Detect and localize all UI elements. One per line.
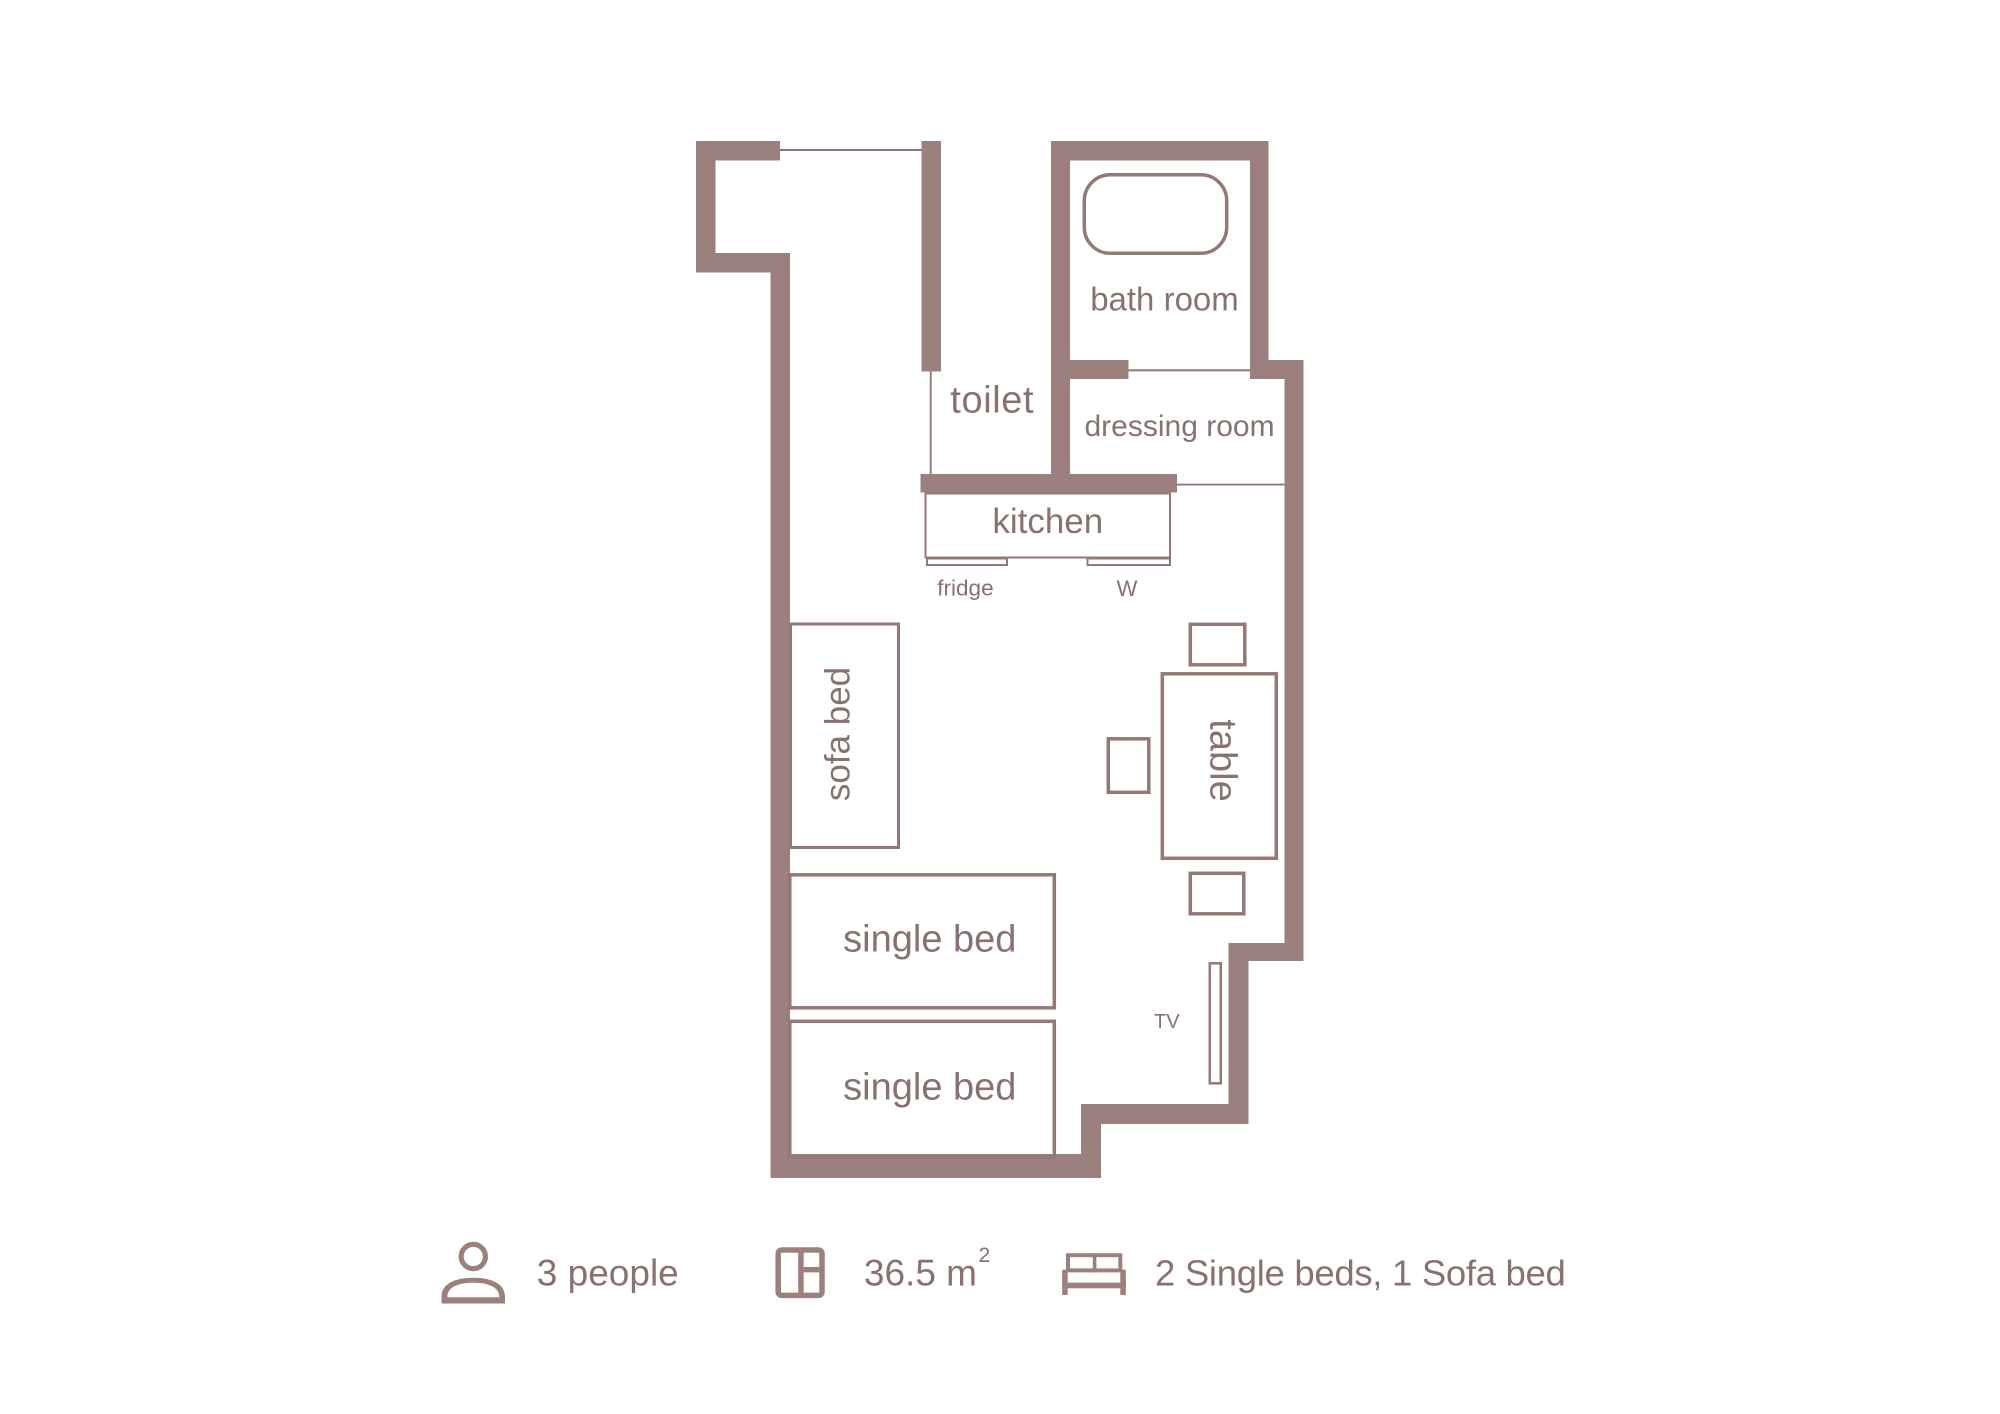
svg-text:dressing room: dressing room <box>1085 410 1275 443</box>
svg-text:toilet: toilet <box>950 379 1034 421</box>
svg-text:2: 2 <box>979 1244 991 1267</box>
svg-text:2 Single beds, 1 Sofa bed: 2 Single beds, 1 Sofa bed <box>1155 1252 1566 1293</box>
svg-text:W: W <box>1117 576 1138 601</box>
svg-text:sofa bed: sofa bed <box>819 667 858 801</box>
svg-text:table: table <box>1202 719 1244 801</box>
svg-text:single bed: single bed <box>843 918 1016 960</box>
svg-text:fridge: fridge <box>937 576 993 601</box>
svg-text:kitchen: kitchen <box>992 502 1103 541</box>
svg-text:36.5 m: 36.5 m <box>864 1252 977 1293</box>
svg-text:single bed: single bed <box>843 1067 1016 1109</box>
svg-text:bath room: bath room <box>1090 280 1239 317</box>
svg-text:TV: TV <box>1154 1011 1180 1033</box>
svg-text:3 people: 3 people <box>537 1252 679 1293</box>
